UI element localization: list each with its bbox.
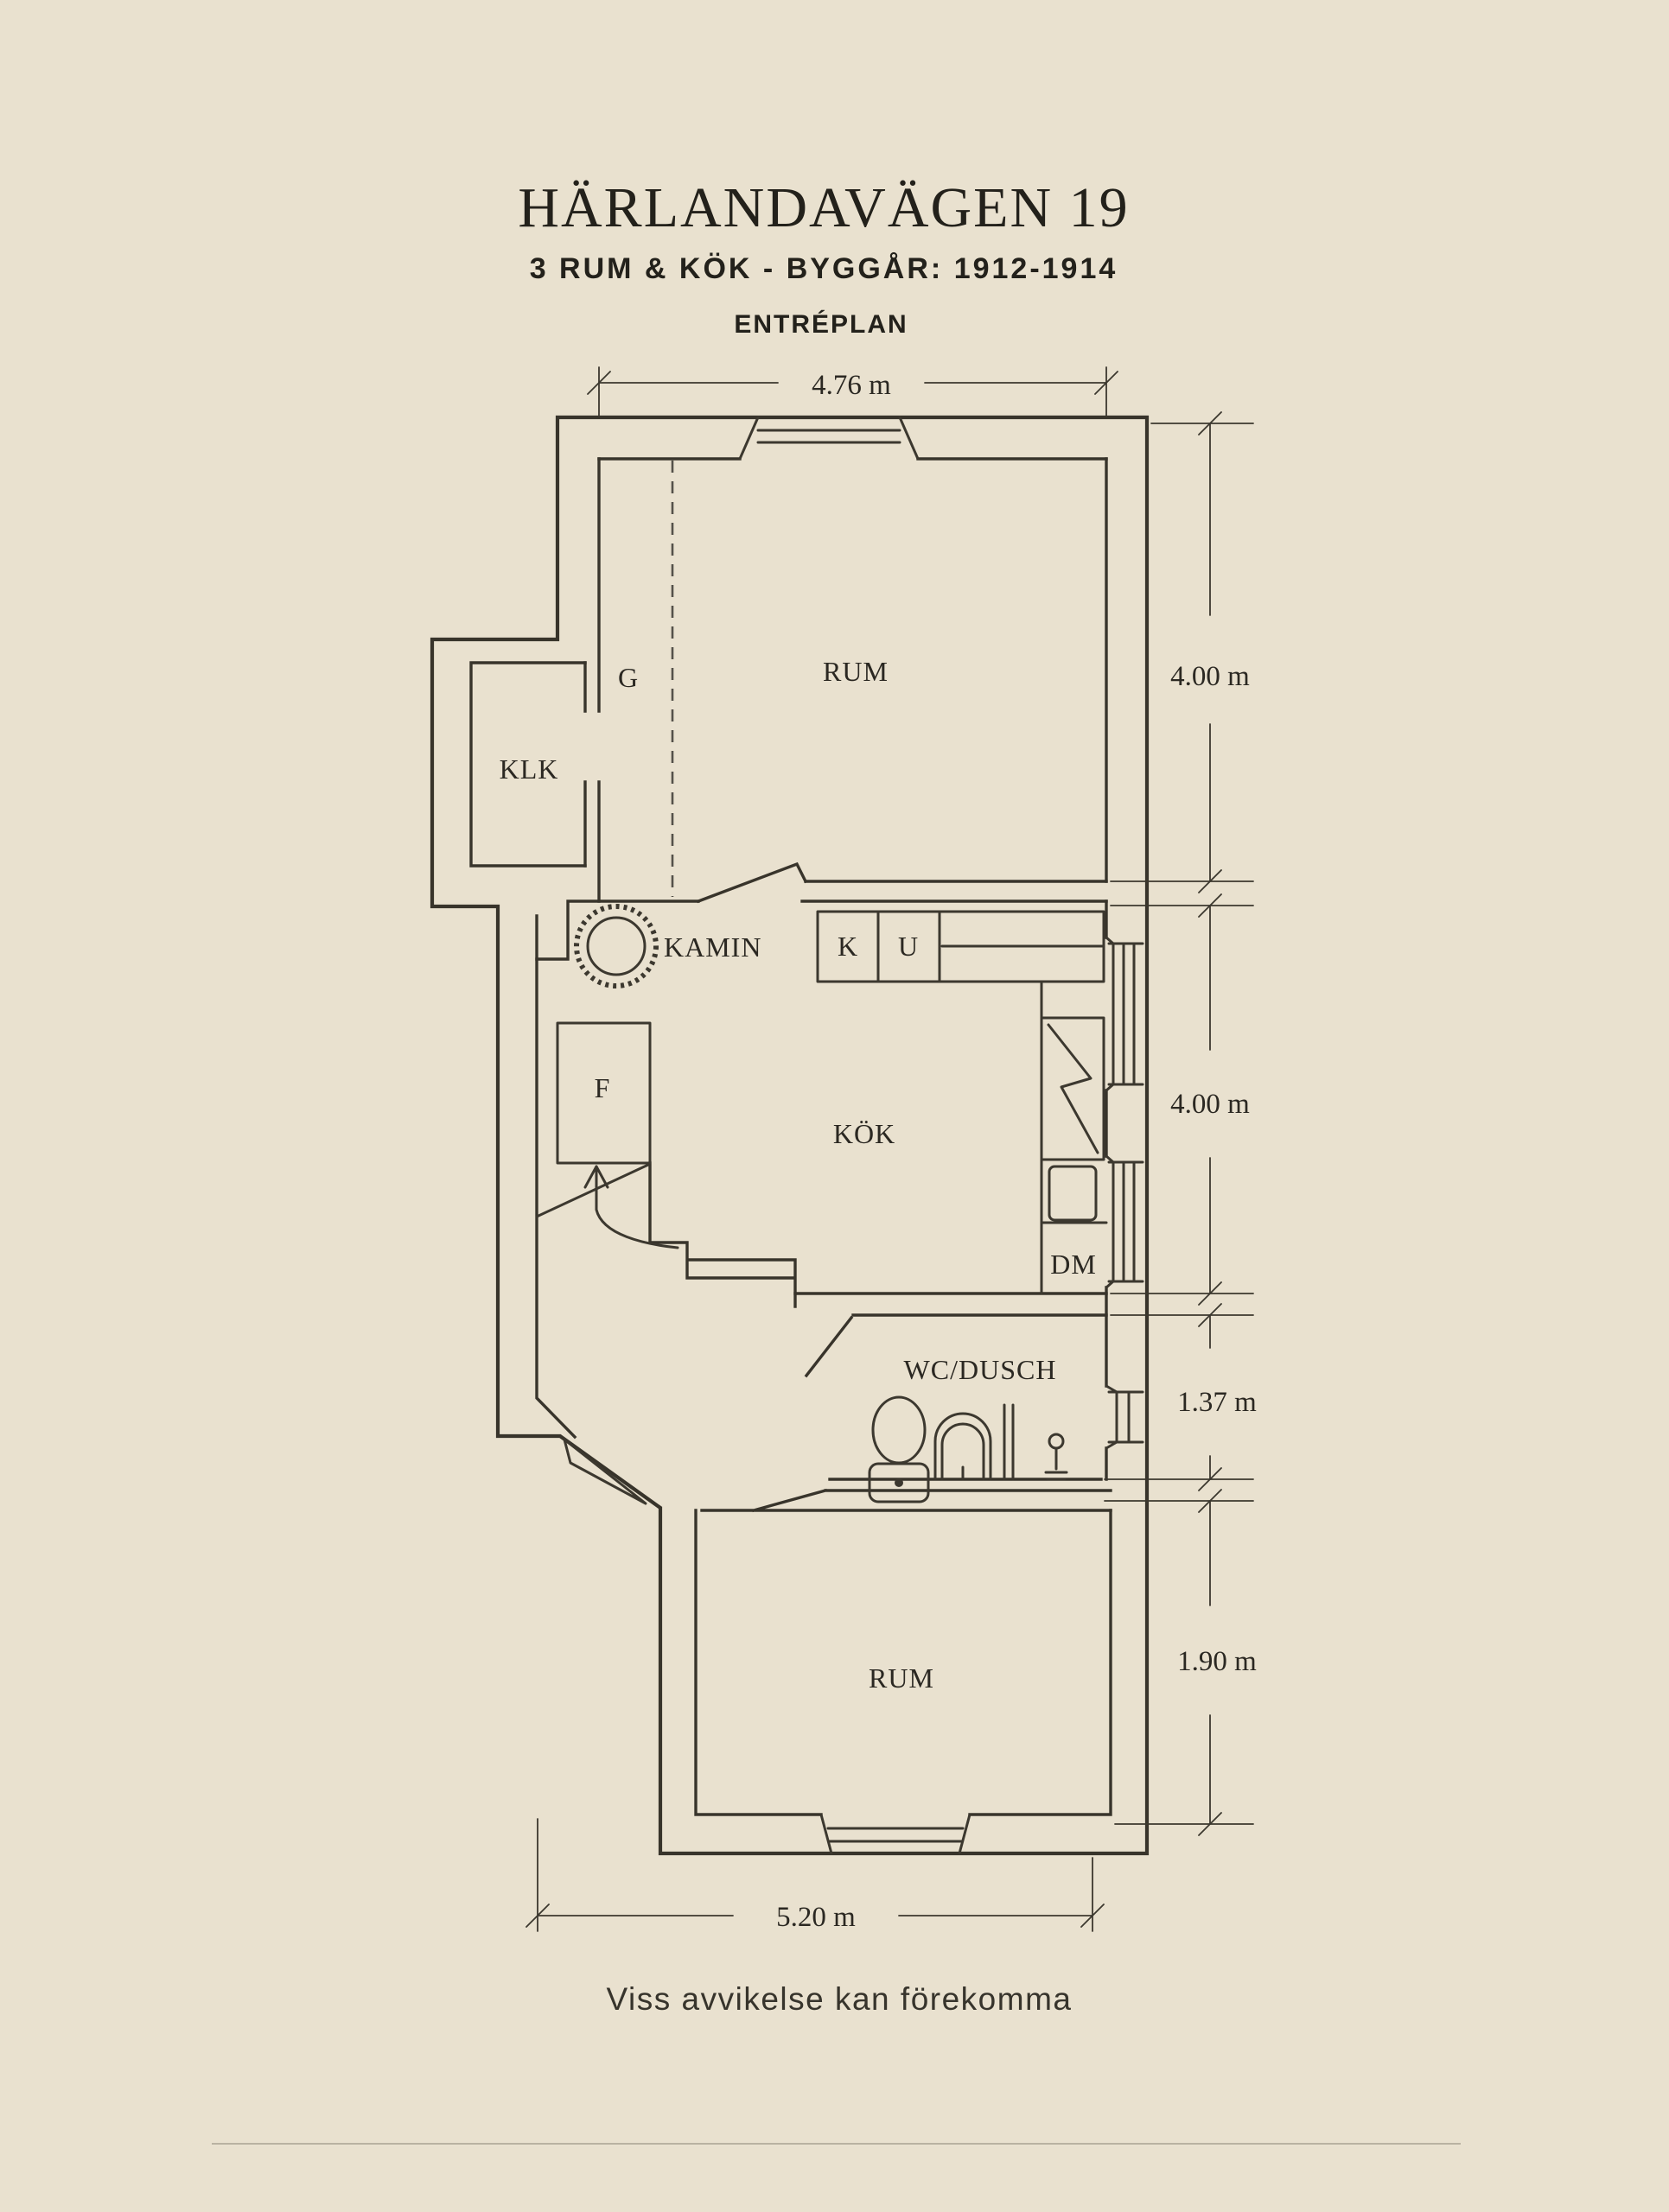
room-label-f: F — [595, 1072, 611, 1103]
wc-fixtures — [870, 1397, 1067, 1502]
exterior-walls — [432, 417, 1147, 1853]
fridge-zigzag — [1048, 1025, 1098, 1153]
room-label-k: K — [838, 931, 858, 962]
entry-arrow — [585, 1166, 678, 1248]
disclaimer-text: Viss avvikelse kan förekomma — [607, 1981, 1073, 2017]
room-labels: RUM KLK G KAMIN KÖK K U F DM WC/DUSCH RU… — [500, 656, 1097, 1694]
dimension-labels: 4.76 m 4.00 m 4.00 m 1.37 m 1.90 m 5.20 … — [776, 370, 1257, 1933]
shower-tap — [1049, 1434, 1063, 1448]
dim-bottom-width: 5.20 m — [776, 1902, 856, 1933]
dim-wc-height: 1.37 m — [1177, 1387, 1257, 1418]
dim-kitchen-height: 4.00 m — [1170, 1089, 1250, 1120]
room-label-kamin: KAMIN — [664, 931, 761, 963]
plan-name-label: ENTRÉPLAN — [734, 309, 908, 339]
entry-door-leaf — [564, 1440, 646, 1503]
dim-upper-room-height: 4.00 m — [1170, 661, 1250, 692]
dim-lower-room-height: 1.90 m — [1177, 1646, 1257, 1677]
room-label-rum-upper: RUM — [823, 656, 889, 687]
shower-partition — [1004, 1405, 1013, 1479]
kamin-fireplace — [577, 906, 656, 986]
room-label-rum-lower: RUM — [869, 1662, 934, 1694]
room-label-g: G — [618, 662, 639, 693]
dim-top-width: 4.76 m — [812, 370, 891, 401]
interior-walls — [471, 459, 1111, 1815]
toilet-bowl — [873, 1397, 925, 1463]
room-label-dm: DM — [1050, 1249, 1097, 1280]
room-label-kok: KÖK — [833, 1118, 895, 1149]
floorplan-svg: HÄRLANDAVÄGEN 19 3 RUM & KÖK - BYGGÅR: 1… — [0, 0, 1669, 2212]
kitchen-fittings — [818, 912, 1106, 1294]
page-subtitle: 3 RUM & KÖK - BYGGÅR: 1912-1914 — [530, 252, 1118, 285]
windows — [740, 417, 1143, 1853]
stove — [1049, 1166, 1096, 1220]
room-label-klk: KLK — [500, 753, 559, 785]
fridge — [1042, 1018, 1104, 1160]
page: HÄRLANDAVÄGEN 19 3 RUM & KÖK - BYGGÅR: 1… — [0, 0, 1669, 2212]
room-label-u: U — [898, 931, 919, 962]
dimension-lines — [526, 367, 1253, 1931]
room-label-wc-dusch: WC/DUSCH — [904, 1354, 1057, 1385]
page-title: HÄRLANDAVÄGEN 19 — [518, 176, 1129, 239]
